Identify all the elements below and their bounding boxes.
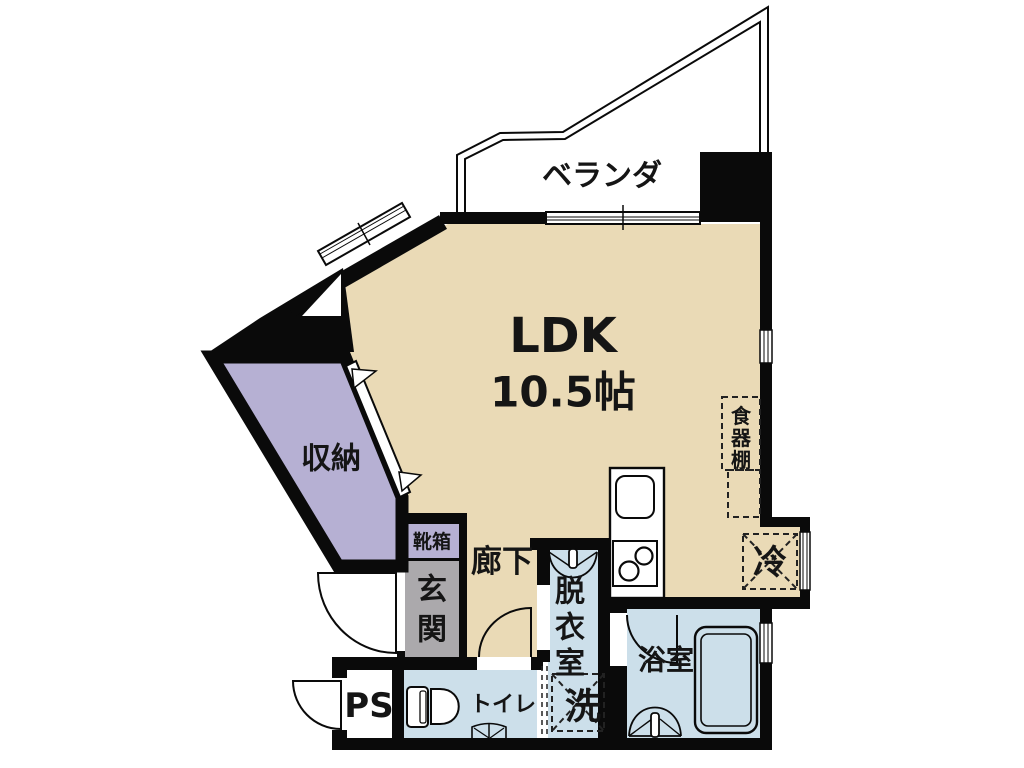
ldk-label: LDK [509, 308, 618, 364]
toilet-label: トイレ [470, 693, 536, 718]
storage-label: 収納 [301, 442, 361, 477]
entrance-door-swing [318, 573, 396, 653]
bathroom-doorway [610, 613, 627, 666]
veranda-label: ベランダ [542, 159, 662, 194]
svg-text:脱: 脱 [555, 575, 585, 610]
window-fridge-nook [800, 532, 810, 590]
bathroom-sink-faucet [651, 713, 659, 737]
floor-plan-drawing: ベランダ LDK 10.5帖 収納 靴箱 玄 関 廊下 脱 衣 室 洗 浴室 ト… [0, 0, 1024, 768]
svg-text:器: 器 [730, 426, 752, 450]
wall-dressing-right [598, 538, 610, 609]
bathroom-label: 浴室 [638, 644, 694, 677]
toilet-tank [407, 687, 428, 727]
wall-top [440, 212, 546, 224]
window-bathroom [760, 623, 772, 663]
cupboard-label: 食 器 棚 [730, 404, 752, 472]
washer-label: 洗 [565, 687, 601, 728]
vanity-faucet [569, 549, 577, 568]
wall-right-mid [760, 362, 772, 517]
dressing-doorway [537, 585, 550, 650]
wall-right-upper [760, 222, 772, 330]
kitchen-sink [616, 476, 654, 518]
svg-text:棚: 棚 [731, 448, 751, 472]
toilet-bowl [431, 689, 459, 724]
shoebox-label: 靴箱 [413, 530, 451, 553]
wall-nook-bottom [760, 597, 810, 609]
svg-text:関: 関 [417, 613, 447, 648]
svg-text:室: 室 [555, 647, 585, 682]
kitchen-counter [610, 468, 664, 598]
hallway-label: 廊下 [471, 544, 533, 580]
entrance-doorway [397, 571, 405, 651]
svg-text:衣: 衣 [555, 611, 585, 646]
window-right [760, 330, 772, 363]
refrigerator-label: 冷 [753, 543, 787, 583]
toilet-doorway [477, 657, 531, 670]
floor-plan-page: ベランダ LDK 10.5帖 収納 靴箱 玄 関 廊下 脱 衣 室 洗 浴室 ト… [0, 0, 1024, 768]
wall-block-top-right [700, 152, 772, 222]
svg-text:玄: 玄 [417, 573, 447, 608]
svg-text:食: 食 [731, 404, 752, 428]
dressing-room-label: 脱 衣 室 [555, 575, 585, 682]
ps-label: PS [344, 686, 393, 726]
ldk-size-label: 10.5帖 [490, 368, 636, 417]
wall-nook-cap-top [800, 517, 810, 532]
toilet-dressing-partition [542, 666, 547, 738]
